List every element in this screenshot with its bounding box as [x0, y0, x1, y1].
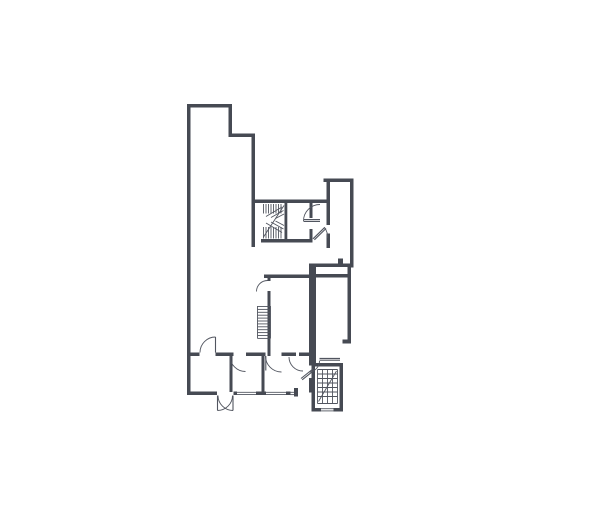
screenshot-root [0, 0, 605, 530]
floor-plan-svg [0, 0, 605, 530]
walls-layer [187, 104, 354, 412]
door-leaf-layer [216, 220, 341, 411]
